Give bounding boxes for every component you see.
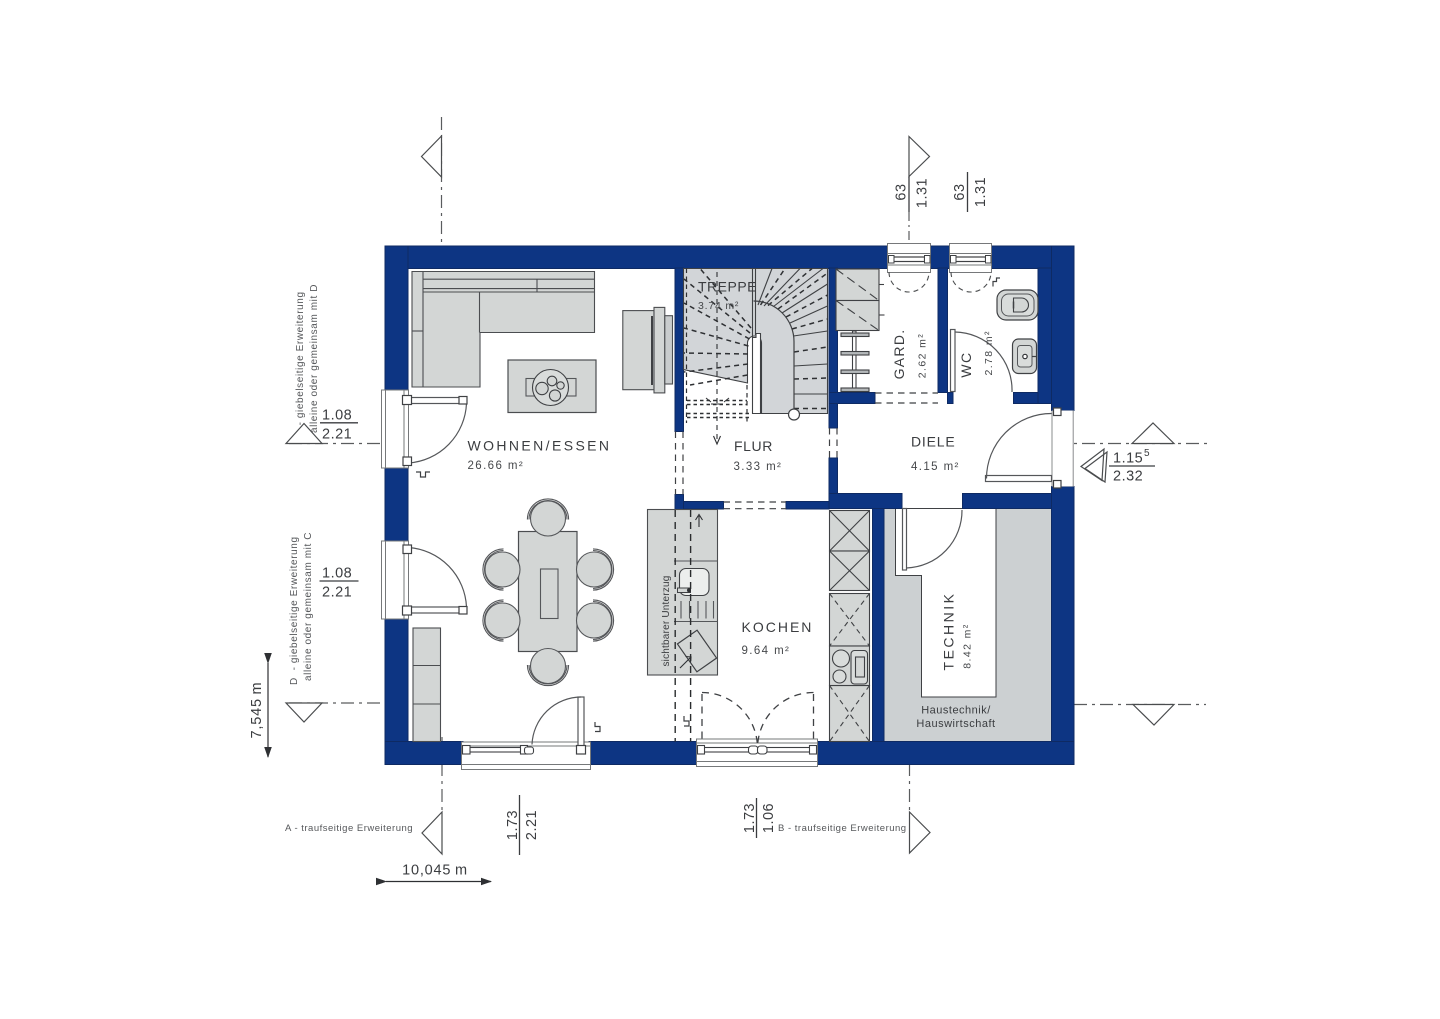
svg-text:26.66 m²: 26.66 m²: [468, 460, 525, 472]
svg-text:1.73: 1.73: [505, 810, 521, 840]
svg-text:2.32: 2.32: [1113, 469, 1143, 485]
svg-text:1.73: 1.73: [742, 803, 758, 833]
svg-text:Haustechnik/: Haustechnik/: [921, 705, 991, 717]
svg-text:alleine oder gemeinsam mit D: alleine oder gemeinsam mit D: [309, 284, 320, 433]
svg-text:A - traufseitige Erweiterung: A - traufseitige Erweiterung: [285, 823, 413, 834]
svg-text:7,545 m: 7,545 m: [249, 682, 265, 739]
svg-text:10,045 m: 10,045 m: [402, 863, 468, 879]
svg-text:2.78 m²: 2.78 m²: [983, 330, 995, 375]
svg-text:1.31: 1.31: [973, 177, 989, 207]
svg-text:Hauswirtschaft: Hauswirtschaft: [916, 718, 995, 730]
svg-text:D - giebelseitige Erweiterung: D - giebelseitige Erweiterung: [289, 536, 300, 685]
svg-text:1.15: 1.15: [1113, 451, 1143, 467]
svg-text:WC: WC: [958, 351, 974, 377]
svg-text:9.64 m²: 9.64 m²: [742, 645, 791, 657]
svg-text:63: 63: [952, 183, 968, 200]
svg-text:5: 5: [1144, 448, 1150, 459]
svg-text:WOHNEN/ESSEN: WOHNEN/ESSEN: [468, 438, 612, 454]
svg-text:FLUR: FLUR: [734, 438, 773, 454]
svg-text:2.21: 2.21: [322, 585, 352, 601]
svg-text:3.33 m²: 3.33 m²: [734, 461, 783, 473]
svg-text:TREPPE: TREPPE: [698, 279, 757, 295]
svg-text:DIELE: DIELE: [911, 434, 955, 450]
svg-text:1.08: 1.08: [322, 566, 352, 582]
svg-text:TECHNIK: TECHNIK: [941, 592, 957, 671]
svg-text:1.31: 1.31: [915, 178, 931, 208]
svg-text:8.42 m²: 8.42 m²: [962, 623, 974, 668]
svg-text:63: 63: [894, 183, 910, 200]
svg-text:KOCHEN: KOCHEN: [742, 619, 814, 635]
svg-text:1.06: 1.06: [761, 803, 777, 833]
svg-text:1.08: 1.08: [322, 408, 352, 424]
svg-text:4.15 m²: 4.15 m²: [911, 461, 960, 473]
svg-text:sichtbarer Unterzug: sichtbarer Unterzug: [661, 575, 672, 666]
svg-text:3.74 m²: 3.74 m²: [698, 300, 739, 312]
svg-text:2.62 m²: 2.62 m²: [917, 333, 929, 378]
svg-text:alleine oder gemeinsam mit C: alleine oder gemeinsam mit C: [303, 532, 314, 681]
svg-text:2.21: 2.21: [322, 427, 352, 443]
svg-text:C - giebelseitige Erweiterung: C - giebelseitige Erweiterung: [295, 291, 306, 440]
svg-text:2.21: 2.21: [524, 810, 540, 840]
svg-text:B - traufseitige Erweiterung: B - traufseitige Erweiterung: [778, 823, 907, 834]
svg-text:GARD.: GARD.: [891, 329, 907, 380]
